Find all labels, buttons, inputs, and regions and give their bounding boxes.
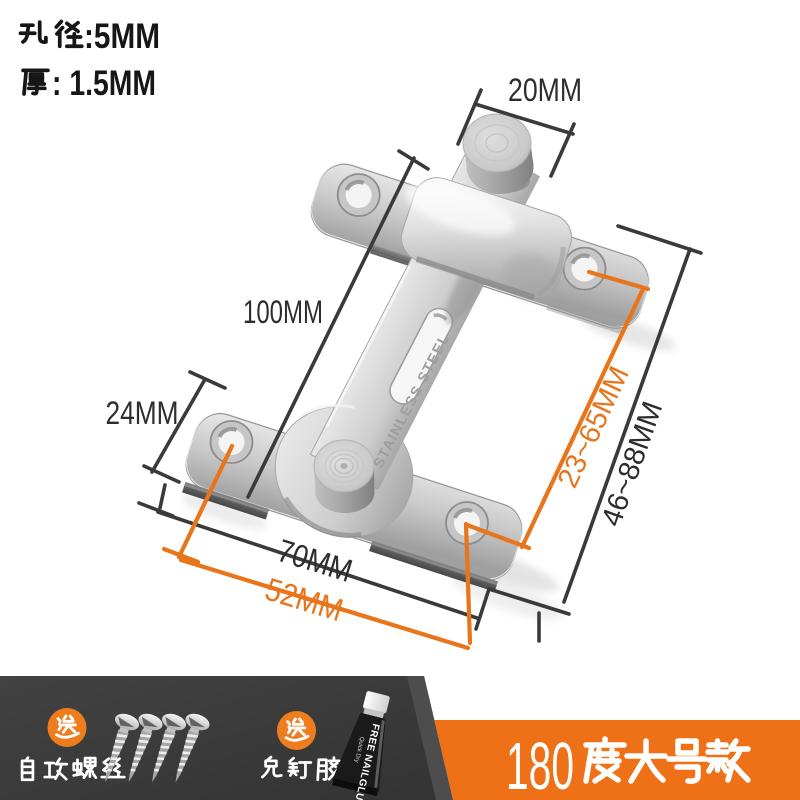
svg-text:: 1.5MM: : 1.5MM [52, 64, 156, 103]
svg-text:100MM: 100MM [243, 294, 323, 330]
svg-text:24MM: 24MM [106, 395, 179, 431]
svg-text:20MM: 20MM [508, 72, 582, 108]
svg-text:180: 180 [506, 729, 574, 800]
svg-text::5MM: :5MM [84, 17, 160, 56]
